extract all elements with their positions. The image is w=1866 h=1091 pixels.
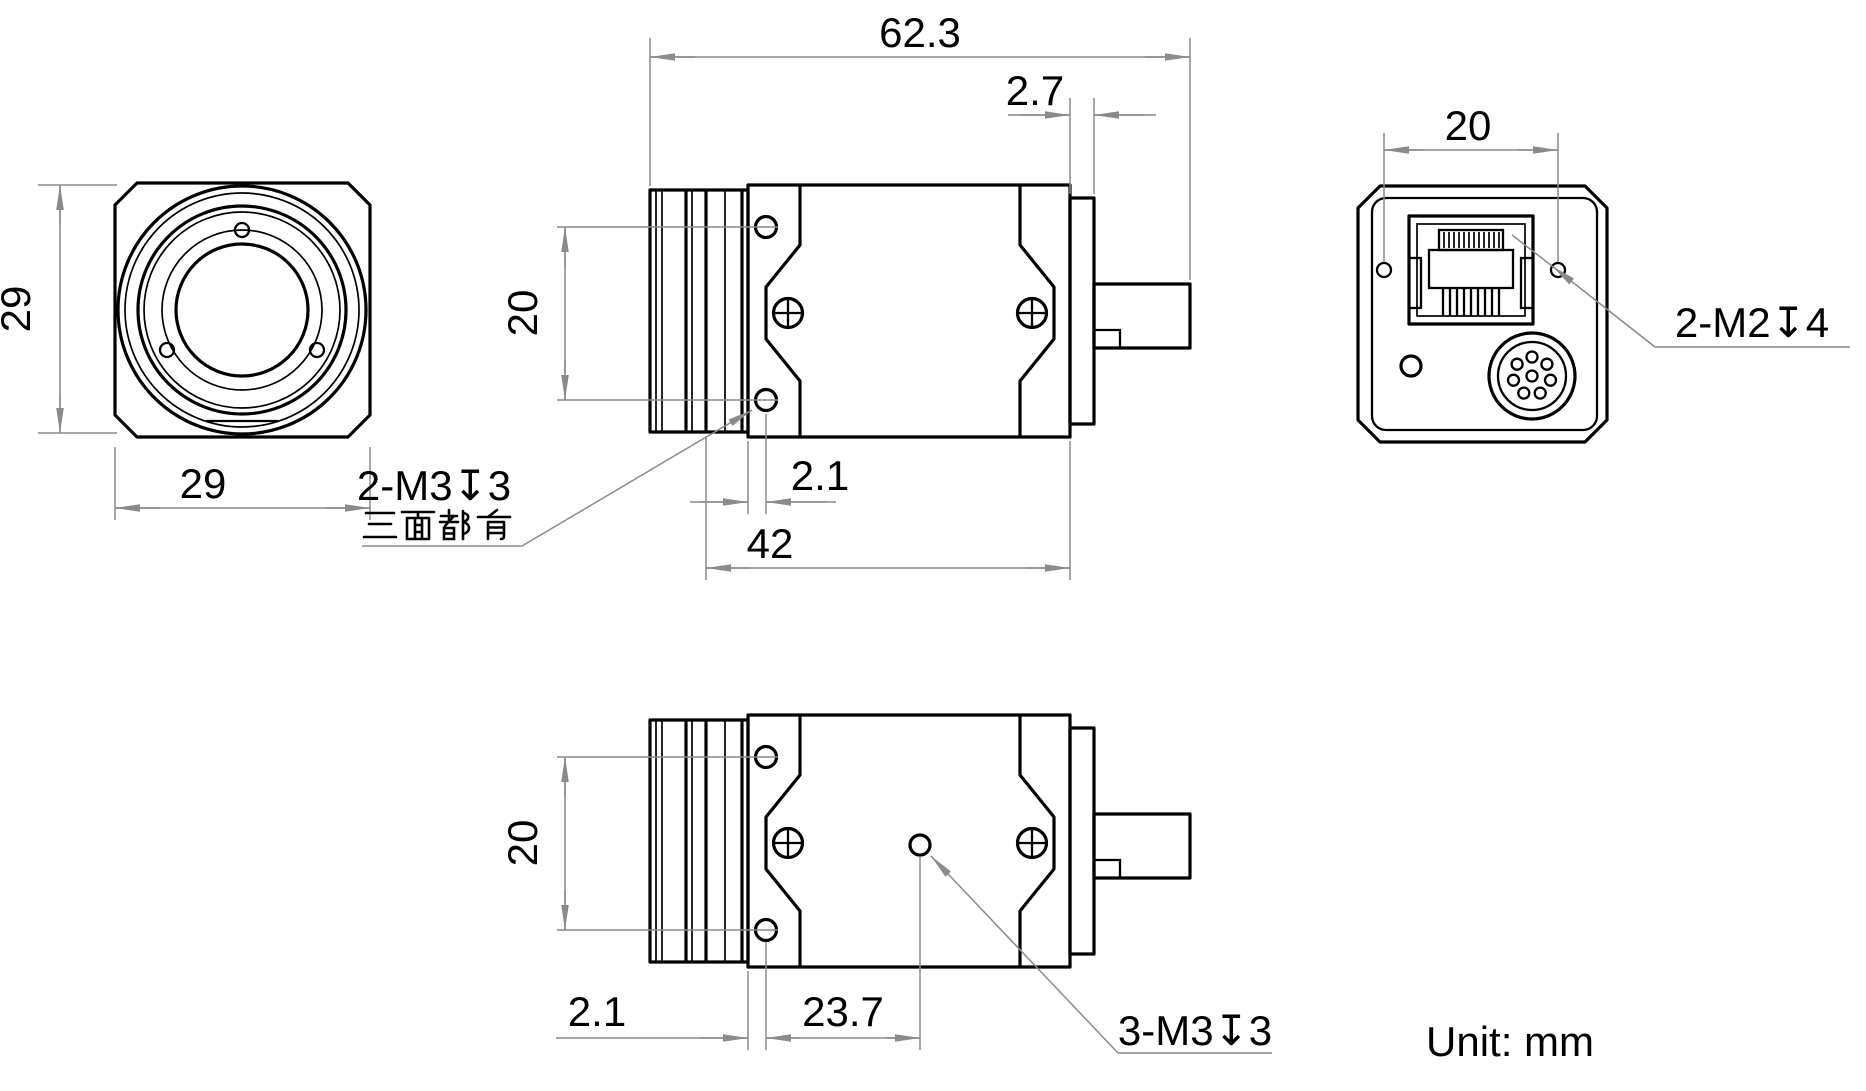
dim-body-length-label: 42	[747, 520, 794, 567]
dim-bottom-hole-offset-label: 2.1	[568, 988, 626, 1035]
dim-rear-step: 2.7	[1006, 67, 1156, 194]
bottom-view: 20 2.1 23.7 3-M3↧3	[499, 715, 1272, 1054]
bottom-block-step	[1094, 860, 1120, 878]
note-bottom-thread-label: 3-M3↧3	[1118, 1007, 1272, 1054]
dim-front-height-label: 29	[0, 286, 39, 333]
drawing-page: 29 29	[0, 0, 1866, 1091]
note-back-thread: 2-M2↧4	[1512, 235, 1850, 347]
dim-bottom-hole-spacing-label: 20	[499, 820, 546, 867]
dim-bottom-center-offset-label: 23.7	[802, 988, 884, 1035]
front-body-outline	[115, 183, 370, 437]
rj45-connector	[1409, 216, 1533, 324]
dim-front-width: 29	[115, 447, 370, 520]
dim-bottom-center-offset: 23.7	[766, 857, 920, 1050]
unit-label: Unit: mm	[1426, 1018, 1594, 1065]
rj45-pins	[1443, 288, 1499, 316]
dim-total-length-label: 62.3	[879, 9, 961, 56]
dim-rear-step-label: 2.7	[1006, 67, 1064, 114]
side-body-outline	[748, 185, 1070, 437]
dim-body-length: 42	[706, 436, 1070, 580]
dim-total-length: 62.3	[650, 9, 1190, 280]
bottom-connector-block	[1094, 814, 1190, 878]
camera-dimension-drawing: 29 29	[0, 0, 1866, 1091]
dim-front-height: 29	[0, 185, 117, 433]
dim-bottom-hole-spacing: 20	[499, 757, 778, 930]
dim-side-hole-spacing: 20	[499, 227, 778, 400]
dim-front-width-label: 29	[180, 460, 227, 507]
dim-back-hole-spacing-label: 20	[1445, 102, 1492, 149]
note-back-thread-label: 2-M2↧4	[1675, 299, 1829, 346]
indicator-hole	[1401, 356, 1421, 376]
bottom-center-hole	[910, 835, 930, 855]
dim-side-hole-offset-label: 2.1	[791, 452, 849, 499]
bottom-body-outline	[748, 715, 1070, 967]
front-view: 29 29	[0, 183, 370, 520]
front-bracket-edge	[766, 185, 800, 437]
bottom-rear-plate	[1070, 728, 1094, 954]
screw-icon	[1018, 299, 1047, 328]
power-connector	[1489, 333, 1575, 419]
screw-icon	[1018, 829, 1047, 858]
screw-icon	[774, 299, 803, 328]
bottom-front-bracket-edge	[766, 715, 800, 967]
dim-side-hole-spacing-label: 20	[499, 290, 546, 337]
back-view: 20 2-M2↧4	[1358, 102, 1850, 442]
dim-side-hole-offset: 2.1	[690, 414, 849, 514]
screw-icon	[774, 829, 803, 858]
note-side-thread-cn	[364, 510, 510, 539]
dim-bottom-hole-offset: 2.1	[556, 942, 766, 1050]
note-side-thread-label: 2-M3↧3	[357, 462, 511, 509]
rear-plate	[1070, 198, 1094, 424]
rear-bracket-edge	[1020, 185, 1054, 437]
rear-block-step	[1094, 330, 1120, 348]
rear-connector-block	[1094, 284, 1190, 348]
m2-hole-left	[1377, 263, 1391, 277]
bottom-rear-bracket-edge	[1020, 715, 1054, 967]
side-view: 62.3 2.7 20 2.1	[357, 9, 1190, 580]
note-bottom-thread: 3-M3↧3	[931, 856, 1272, 1054]
